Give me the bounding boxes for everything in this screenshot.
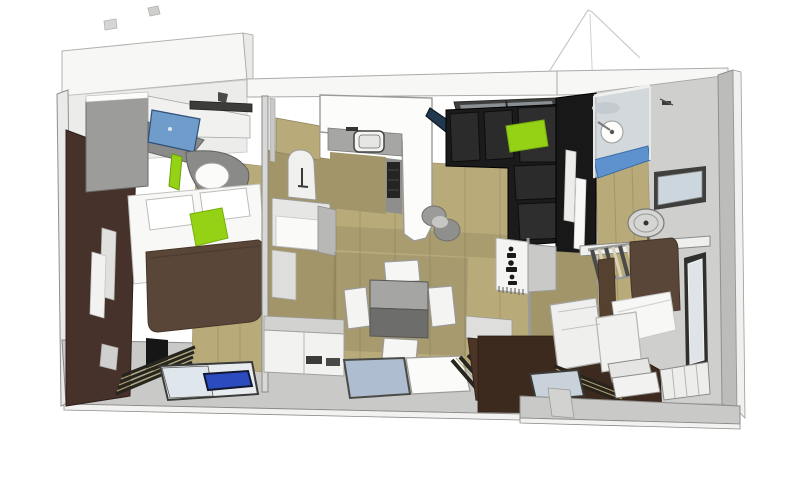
patterned-divider-panel	[496, 238, 528, 294]
roof-vent	[148, 6, 160, 16]
tall-window-glass	[688, 259, 704, 364]
glass-reflection	[592, 102, 620, 114]
dining-chair	[384, 260, 420, 283]
bar-stool-top	[432, 216, 448, 228]
deck-step	[548, 388, 574, 418]
basin-cabinet-front	[276, 216, 318, 250]
sink-faucet	[346, 127, 358, 131]
roof-vent	[104, 19, 117, 30]
green-pillow	[506, 120, 548, 152]
dining-chair	[344, 287, 370, 329]
dish-fan-hub	[644, 221, 649, 226]
cabinet-slot	[306, 356, 322, 364]
shower-head-center	[610, 130, 614, 134]
floor-plan-scene	[0, 0, 800, 480]
wardrobe	[86, 96, 148, 192]
half-wall	[272, 250, 296, 300]
dining-chair	[428, 286, 456, 327]
wall-niche	[100, 344, 118, 370]
tablet	[204, 371, 252, 390]
laptop-camera-dot	[168, 127, 172, 131]
dining-table-front	[370, 308, 428, 338]
sink-basin	[359, 135, 380, 148]
dining-table-top	[370, 280, 428, 310]
door-post	[270, 98, 275, 162]
basin-cabinet-side	[318, 206, 336, 256]
towel	[564, 150, 576, 222]
bed-pillow	[146, 195, 196, 230]
wall-niche	[90, 252, 106, 318]
desk-stool	[195, 163, 229, 189]
dining-area	[332, 252, 468, 361]
kitchen-wood-floor	[330, 152, 386, 214]
towel	[574, 178, 586, 250]
sofa-cushion	[514, 164, 562, 200]
cabinet-slot	[326, 358, 340, 366]
floor-plan-render	[0, 0, 800, 480]
floor-glass-panel	[344, 358, 410, 398]
center-back-wall	[247, 71, 557, 97]
divider-gray-panel	[528, 244, 556, 292]
sofa-cushion	[450, 112, 480, 162]
green-chair	[169, 154, 182, 190]
floor-white-panel	[406, 356, 470, 394]
brown-duvet	[146, 240, 264, 332]
